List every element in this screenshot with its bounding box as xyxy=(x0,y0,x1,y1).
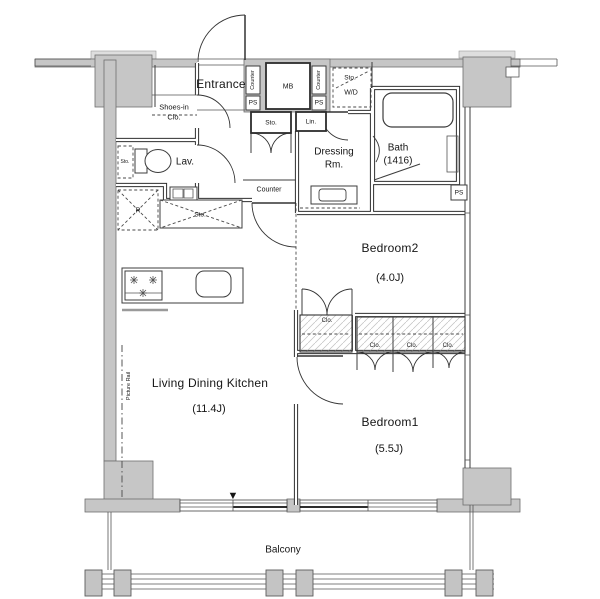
label-ps-bath: PS xyxy=(455,190,464,197)
labels: Entrance Shoes-in Clo. Lav. Sto. Counter… xyxy=(121,70,464,555)
room-label-bedroom2: Bedroom2 xyxy=(362,241,419,255)
toilet-bowl xyxy=(145,150,171,173)
label-ps-right: PS xyxy=(315,100,324,107)
room-size-bedroom2: (4.0J) xyxy=(376,272,404,284)
room-label-entrance: Entrance xyxy=(196,77,246,91)
label-storage-kitchen: Sto. xyxy=(194,212,206,219)
label-meter-box: MB xyxy=(283,84,294,91)
room-label-bath-2: (1416) xyxy=(384,156,413,167)
label-linen: Lin. xyxy=(306,119,317,126)
room-label-balcony: Balcony xyxy=(265,545,301,556)
floor-plan: Entrance Shoes-in Clo. Lav. Sto. Counter… xyxy=(0,0,600,599)
room-label-bedroom1: Bedroom1 xyxy=(362,415,419,429)
label-closet-bd1-2: Clo. xyxy=(407,343,418,349)
room-size-bedroom1: (5.5J) xyxy=(375,443,403,455)
floor-plan-page: Entrance Shoes-in Clo. Lav. Sto. Counter… xyxy=(0,0,600,599)
room-label-bath-1: Bath xyxy=(388,143,409,154)
label-closet-bd1-3: Clo. xyxy=(443,343,454,349)
label-counter-left: Counter xyxy=(250,70,256,90)
direction-marker: ▼ xyxy=(228,490,239,502)
label-counter-kitchen: Counter xyxy=(257,187,283,194)
bedroom1-window xyxy=(300,500,437,511)
label-washer-dryer: W/D xyxy=(344,90,358,97)
label-storage-lav: Sto. xyxy=(121,159,130,165)
room-label-lavatory: Lav. xyxy=(176,157,194,168)
room-label-dressing-2: Rm. xyxy=(325,160,343,171)
label-counter-right: Counter xyxy=(316,70,322,90)
room-size-ldk: (11.4J) xyxy=(192,403,225,415)
label-closet-bd1-1: Clo. xyxy=(370,343,381,349)
sink xyxy=(196,271,231,297)
label-storage-hall: Sto. xyxy=(265,120,277,127)
room-label-ldk: Living Dining Kitchen xyxy=(152,376,268,390)
label-storage-wd: Sto. xyxy=(344,75,356,82)
label-picture-rail: Picture Rail xyxy=(126,372,132,400)
label-closet-bd2: Clo. xyxy=(322,318,333,324)
room-label-shoes-closet-1: Shoes-in xyxy=(159,103,189,112)
room-label-shoes-closet-2: Clo. xyxy=(167,113,180,122)
stove xyxy=(125,271,162,300)
bathtub xyxy=(383,93,453,127)
label-ps-left: PS xyxy=(249,100,258,107)
closets xyxy=(300,289,465,372)
label-refrigerator: R xyxy=(135,208,140,215)
room-label-dressing-1: Dressing xyxy=(314,147,353,158)
